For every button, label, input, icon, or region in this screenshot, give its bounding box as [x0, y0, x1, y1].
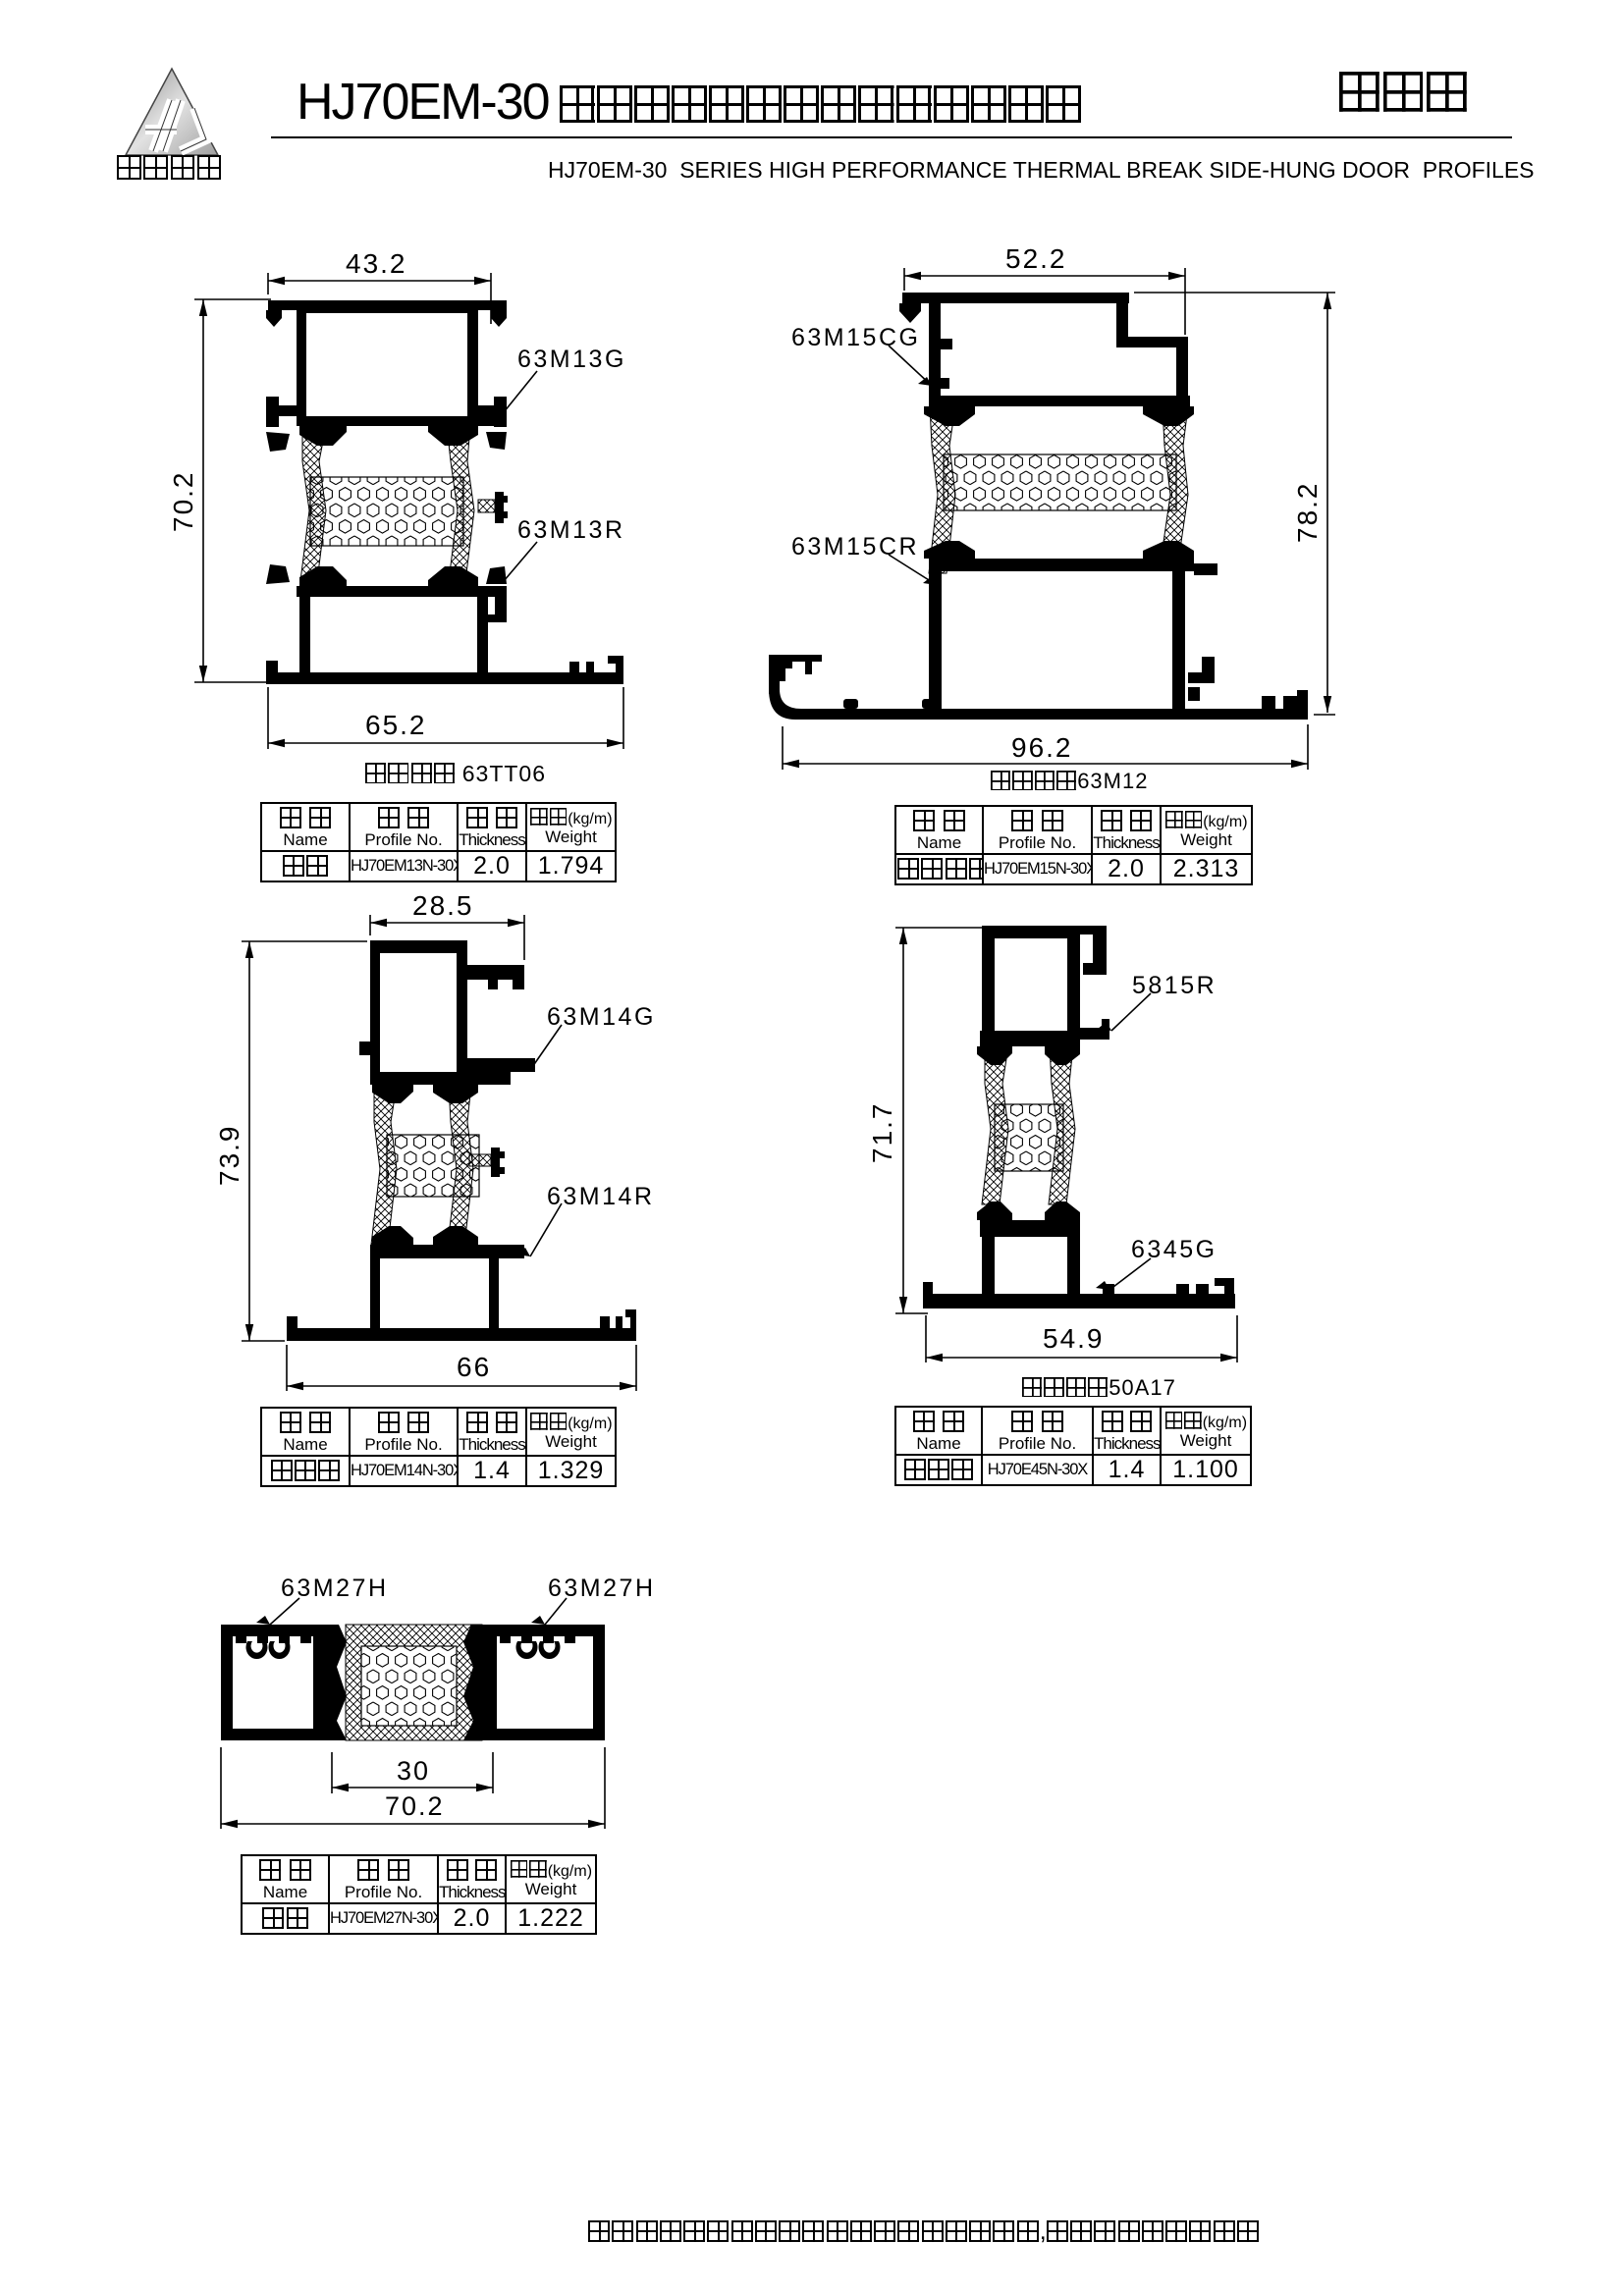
svg-text:66: 66 [457, 1352, 491, 1382]
svg-text:43.2: 43.2 [346, 248, 407, 279]
svg-text:54.9: 54.9 [1043, 1323, 1105, 1354]
svg-text:71.7: 71.7 [867, 1102, 897, 1164]
svg-text:65.2: 65.2 [365, 710, 427, 740]
svg-text:70.2: 70.2 [168, 471, 198, 533]
svg-text:52.2: 52.2 [1005, 243, 1067, 274]
svg-text:28.5: 28.5 [412, 890, 474, 921]
svg-text:30: 30 [397, 1756, 430, 1786]
svg-text:78.2: 78.2 [1292, 482, 1323, 544]
svg-text:70.2: 70.2 [385, 1791, 445, 1821]
svg-text:96.2: 96.2 [1011, 732, 1073, 763]
svg-text:73.9: 73.9 [214, 1125, 244, 1187]
